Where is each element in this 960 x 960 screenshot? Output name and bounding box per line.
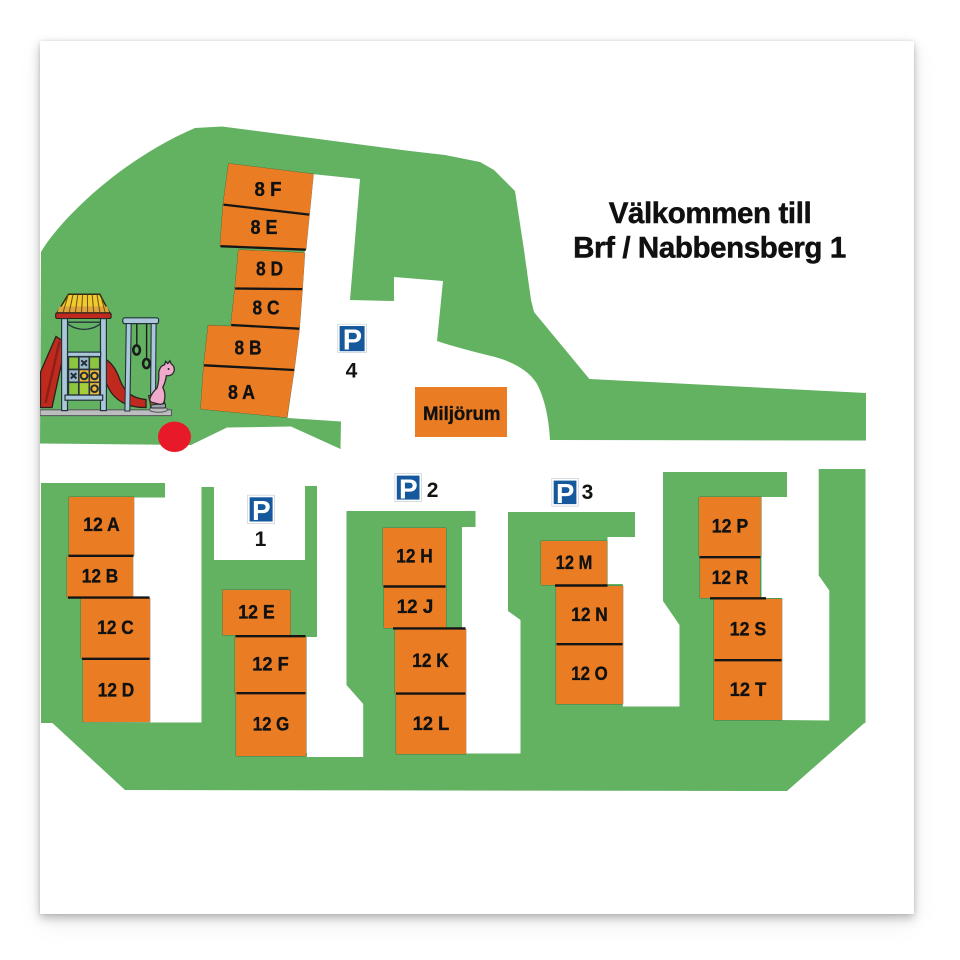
svg-text:12 G: 12 G (253, 714, 290, 736)
svg-text:Välkommen till: Välkommen till (609, 197, 812, 230)
svg-text:12 T: 12 T (730, 679, 767, 701)
svg-text:P: P (343, 325, 362, 357)
svg-text:12 F: 12 F (252, 654, 289, 676)
svg-text:12 R: 12 R (712, 567, 749, 589)
svg-text:Brf / Nabbensberg 1: Brf / Nabbensberg 1 (573, 232, 846, 265)
svg-text:12 N: 12 N (571, 604, 608, 626)
svg-text:P: P (556, 478, 574, 509)
svg-text:3: 3 (582, 481, 594, 504)
svg-text:12 B: 12 B (82, 566, 119, 588)
svg-text:12 O: 12 O (571, 663, 608, 685)
svg-text:8 B: 8 B (235, 338, 262, 360)
svg-text:8 F: 8 F (255, 179, 282, 201)
svg-text:2: 2 (427, 479, 439, 502)
svg-text:8 E: 8 E (251, 217, 278, 239)
svg-text:12 E: 12 E (238, 602, 275, 624)
svg-text:12 D: 12 D (98, 680, 135, 702)
svg-text:12 K: 12 K (412, 650, 449, 672)
svg-text:12 C: 12 C (97, 617, 134, 639)
svg-text:P: P (399, 473, 418, 504)
svg-text:1: 1 (255, 528, 267, 551)
svg-text:12 A: 12 A (83, 514, 120, 536)
svg-text:12 S: 12 S (730, 619, 767, 641)
svg-text:8 C: 8 C (253, 298, 280, 320)
svg-text:8 D: 8 D (256, 259, 283, 281)
svg-text:12 L: 12 L (413, 713, 450, 735)
svg-text:12 H: 12 H (396, 546, 433, 568)
svg-text:Miljörum: Miljörum (423, 404, 501, 425)
svg-text:P: P (252, 495, 271, 526)
svg-text:12 J: 12 J (397, 596, 434, 618)
svg-text:12 P: 12 P (712, 516, 749, 538)
svg-text:8 A: 8 A (228, 382, 255, 404)
svg-text:12 M: 12 M (556, 552, 593, 574)
svg-text:4: 4 (346, 360, 358, 383)
